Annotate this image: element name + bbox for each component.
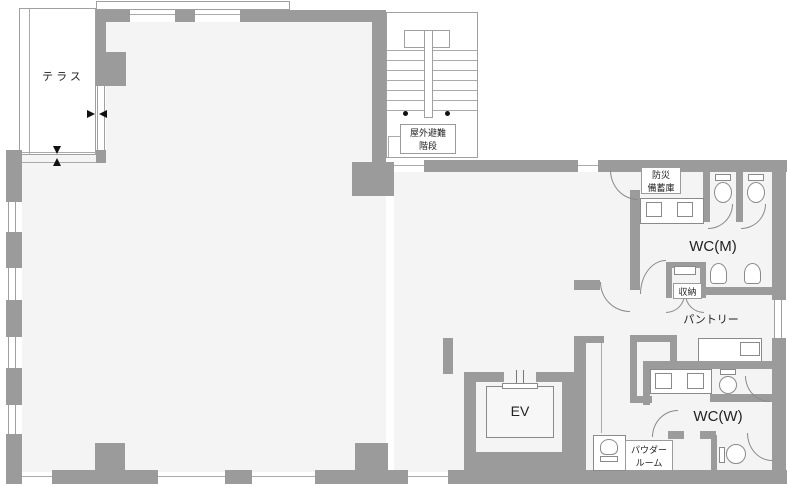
wcm-label: WC(M): [671, 238, 755, 255]
terrace-right-wall-lower: [96, 150, 106, 163]
bottom-wall-seg-2: [225, 470, 252, 484]
stair-left-wall: [372, 10, 386, 162]
powder-label-line2: ルーム: [626, 456, 672, 469]
ev-wall-bottom: [464, 452, 586, 480]
stair-stringer: [424, 30, 433, 118]
storage-shelf: [674, 266, 696, 275]
corridor-line: [601, 343, 602, 433]
bottom-window-line-2: [158, 476, 225, 477]
left-wall-pier-1: [6, 150, 22, 202]
urinal-1: [710, 263, 727, 284]
top-wall-seg-3: [240, 10, 386, 22]
stairs-leader-v: [388, 136, 389, 157]
bottom-window-line-4: [408, 476, 448, 477]
floor-plan: テラス 屋外避難 階段: [0, 0, 787, 487]
ev-door-tick-1: [516, 370, 517, 384]
left-window-4: [8, 405, 16, 434]
ev-entry-wall-stub: [443, 338, 453, 374]
understair-window-line: [394, 165, 424, 166]
pantry-entry-wall-stub: [574, 280, 600, 290]
stair-pier: [352, 162, 394, 196]
stairs-label-line1: 屋外避難: [401, 126, 455, 139]
office-floor-upper: [106, 22, 386, 163]
ev-wall-top-left: [464, 372, 504, 382]
wcm-bottom-wall: [700, 287, 772, 295]
wcw-toilet-1-tank: [720, 369, 736, 375]
terrace-door-marker-right-icon: [87, 110, 95, 118]
wcm-sink-2: [677, 202, 693, 217]
terrace-door-marker-down-icon: [53, 146, 61, 154]
wcw-toilet-2-bowl: [726, 444, 746, 464]
storage-wall-left: [666, 262, 672, 298]
pantry-sink: [740, 342, 760, 356]
rw-top-wall-seg-1: [424, 160, 578, 172]
bottom-wall-seg-1: [52, 470, 158, 484]
wcm-left-wall: [630, 190, 640, 290]
left-wall-pier-2: [6, 232, 22, 268]
wcm-toilet-2-bowl: [747, 182, 765, 203]
powder-room-label: パウダー ルーム: [625, 440, 673, 471]
bottom-window-line-3: [252, 476, 315, 477]
left-wall-pier-4: [6, 368, 22, 405]
terrace-door-marker-left-icon: [99, 110, 107, 118]
urinal-2: [744, 263, 761, 284]
terrace-door-marker-up-icon: [53, 158, 61, 166]
left-wall-pier-5: [6, 434, 22, 484]
terrace-right-window: [97, 86, 105, 150]
wcw-toilet-1-bowl: [719, 376, 737, 394]
accessible-toilet-bowl: [600, 439, 618, 455]
right-window: [774, 300, 782, 338]
accessible-toilet-tank: [600, 456, 618, 462]
bottom-pier-1: [95, 443, 125, 470]
terrace-right-pier: [96, 52, 126, 86]
right-wall-lower: [772, 338, 786, 484]
left-wall-pier-3: [6, 300, 22, 337]
ev-cab-door: [502, 383, 538, 389]
left-window-3: [8, 337, 16, 368]
stairs-label-line2: 階段: [401, 139, 455, 152]
stair-post-1: [403, 111, 408, 116]
wcw-sink-2: [687, 373, 704, 389]
parapet-outline: [96, 1, 290, 10]
stairs-label: 屋外避難 階段: [400, 124, 456, 154]
wcw-sink-1: [655, 373, 672, 389]
wcm-toilet-1-bowl: [714, 182, 732, 203]
left-window-2: [8, 268, 16, 300]
wcw-label: WC(W): [676, 408, 760, 425]
wcm-toilet-1-tank: [715, 174, 731, 181]
wcw-left-wall: [643, 361, 650, 405]
pantry-label: パントリー: [671, 314, 751, 327]
wcw-top-wall: [643, 361, 773, 369]
right-wall-upper: [772, 160, 786, 300]
left-window-1: [8, 202, 16, 232]
disaster-label-line2: 備蓄庫: [642, 181, 680, 194]
disaster-storage-label: 防災 備蓄庫: [641, 167, 681, 194]
top-window-line-2: [195, 14, 240, 15]
storage-label-box: 収納: [673, 283, 702, 299]
terrace-right-wall-upper: [96, 22, 106, 52]
bottom-window-line-1: [22, 476, 52, 477]
office-floor-main: [22, 152, 386, 472]
disaster-label-line1: 防災: [642, 168, 680, 181]
rw-top-window-line: [578, 165, 598, 166]
stair-post-2: [445, 111, 450, 116]
terrace-label: テラス: [33, 71, 93, 84]
ps-wall-left: [630, 335, 637, 403]
wcw-toilet-2-tank: [719, 447, 725, 463]
bottom-wall-seg-3: [315, 470, 408, 484]
bottom-pier-2: [355, 443, 388, 470]
top-wall-seg-1: [96, 10, 130, 22]
top-window-line-1: [130, 14, 175, 15]
ev-label: EV: [488, 403, 552, 419]
wcm-sink-1: [646, 202, 662, 217]
powder-label-line1: パウダー: [626, 443, 672, 456]
top-wall-seg-2: [175, 10, 195, 22]
wcm-toilet-2-tank: [748, 174, 764, 181]
wcw-stall-2-divider: [711, 435, 717, 480]
storage-label: 収納: [674, 285, 701, 298]
terrace-inner-line: [29, 8, 30, 155]
ev-door-tick-2: [523, 370, 524, 384]
